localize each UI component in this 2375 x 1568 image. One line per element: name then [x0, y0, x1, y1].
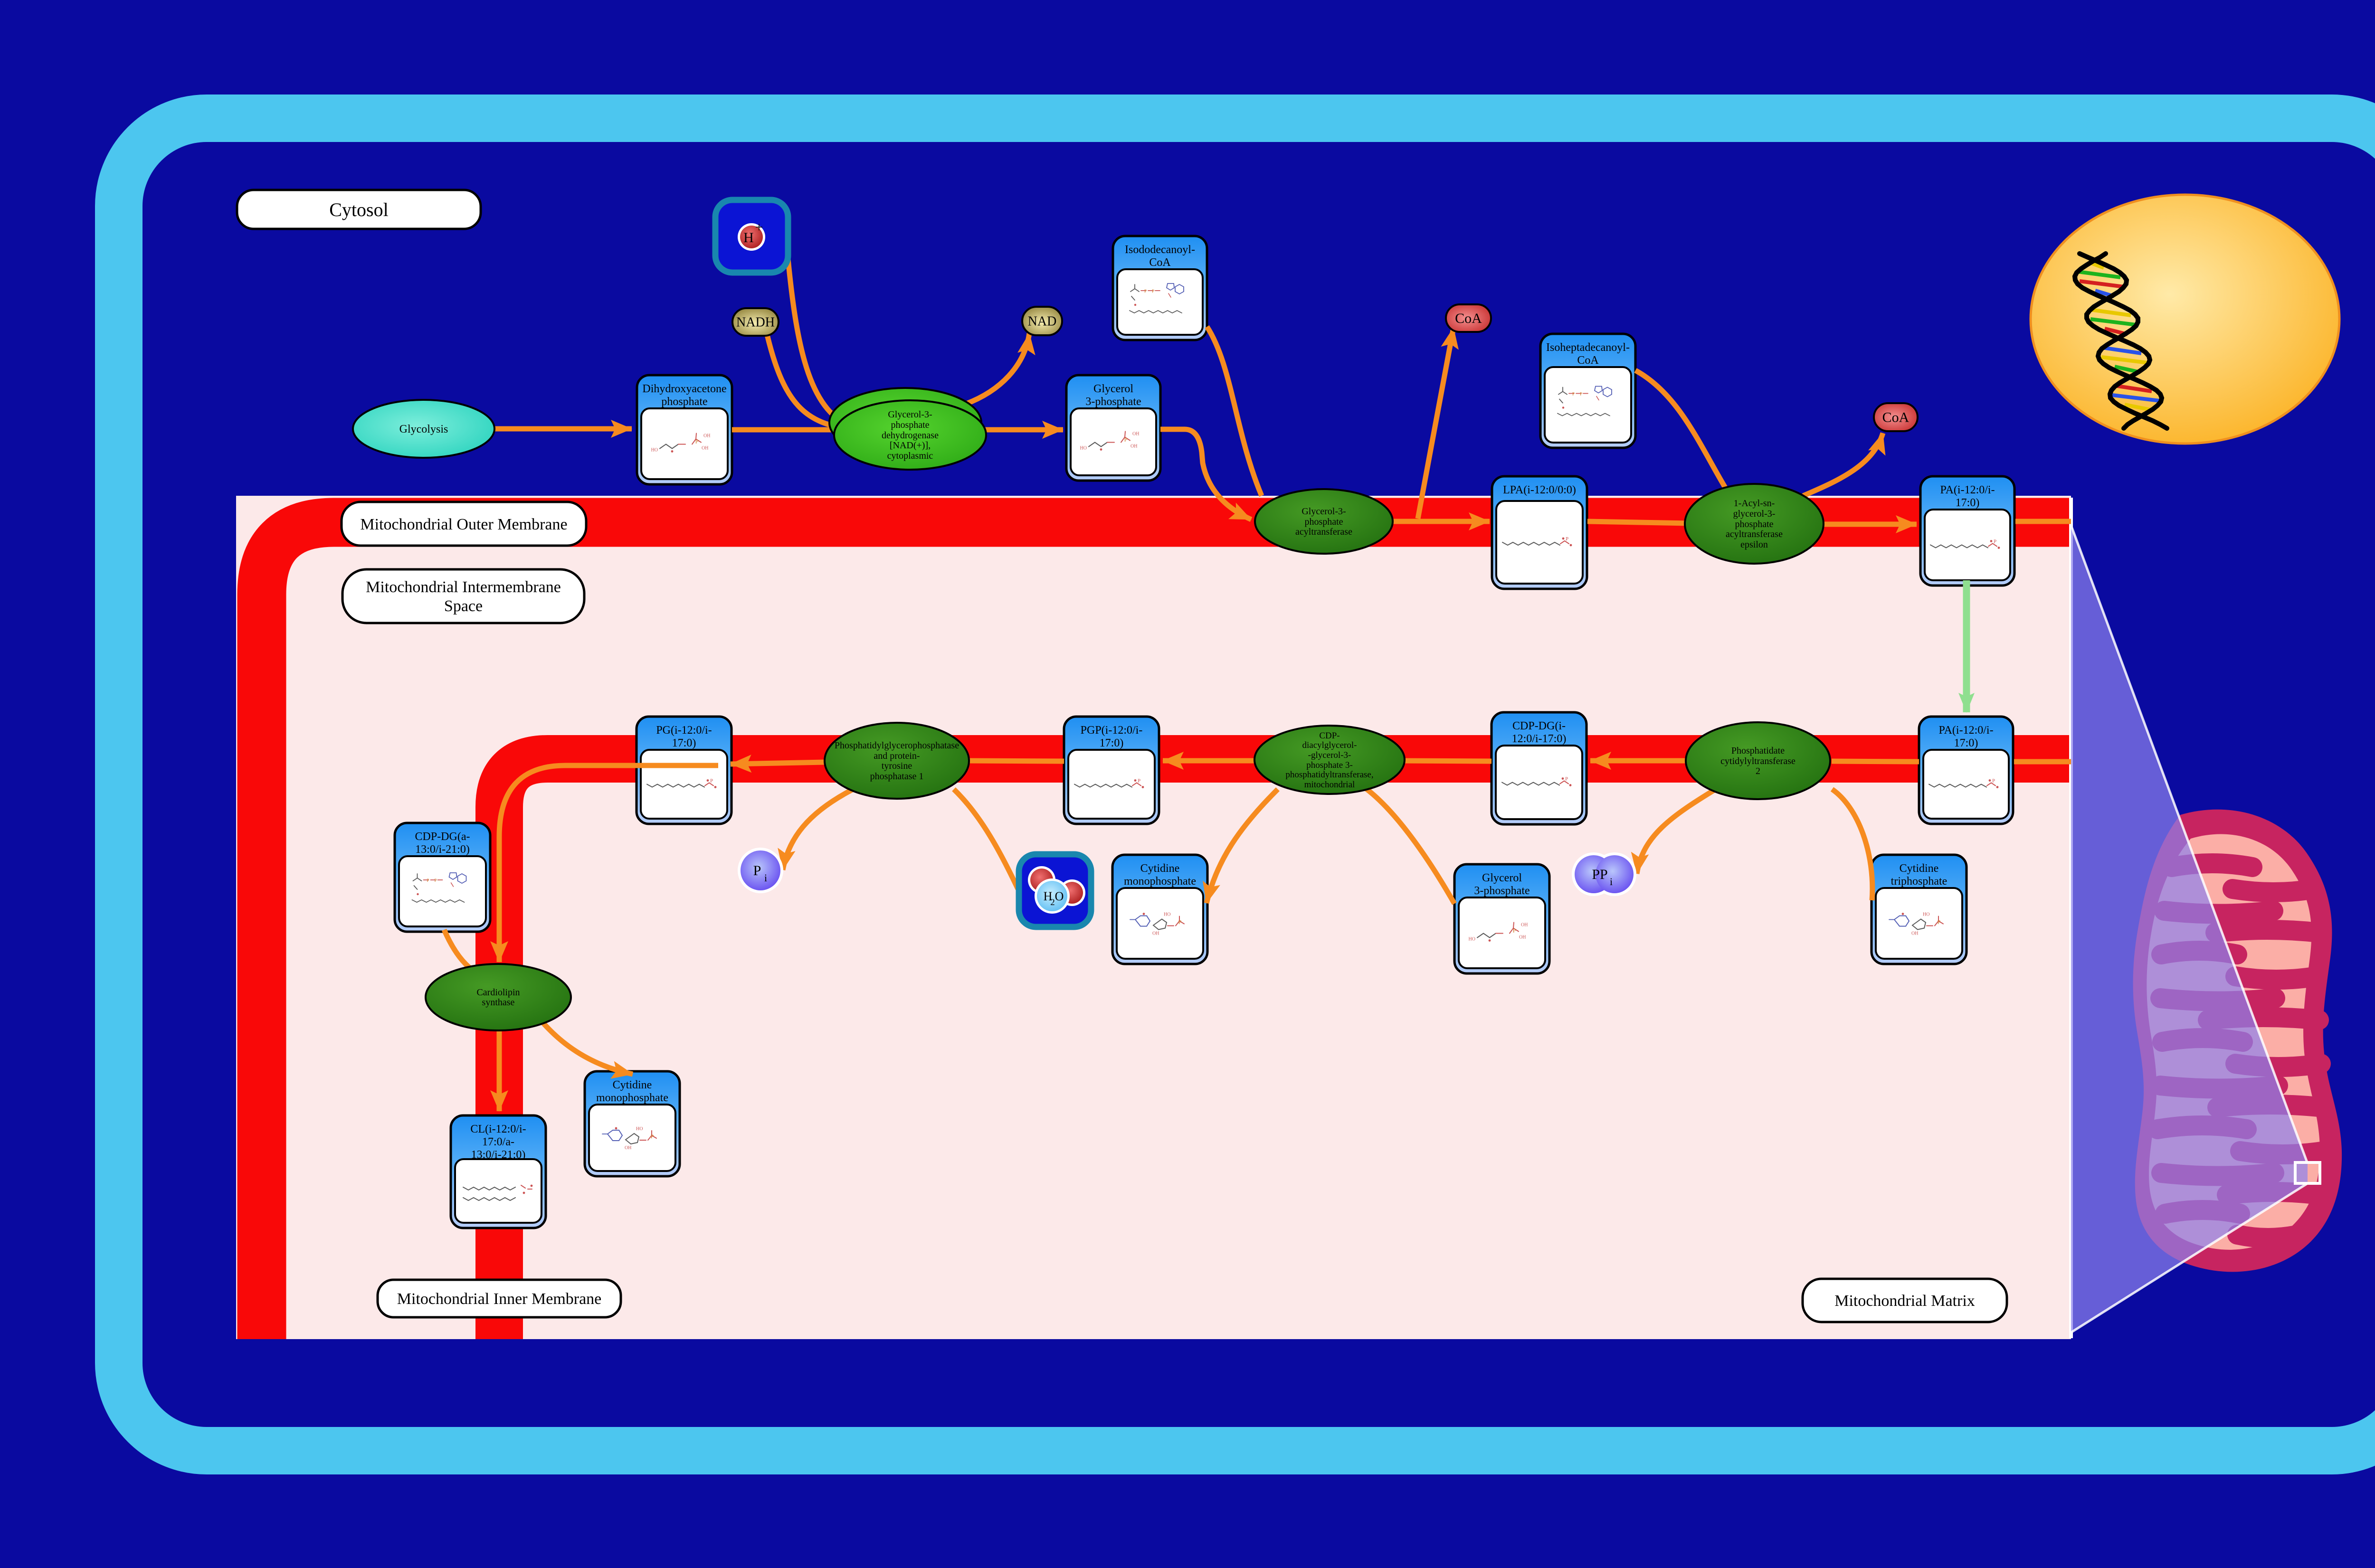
svg-text:Cytosol: Cytosol	[329, 199, 388, 220]
svg-text:HO: HO	[1469, 937, 1475, 942]
svg-text:17:0): 17:0)	[672, 737, 696, 749]
svg-text:Isododecanoyl-: Isododecanoyl-	[1125, 244, 1195, 256]
svg-text:epsilon: epsilon	[1740, 539, 1768, 550]
svg-text:Glycerol-3-: Glycerol-3-	[888, 409, 932, 420]
svg-text:CL(i-12:0/i-: CL(i-12:0/i-	[470, 1123, 526, 1135]
svg-text:cytoplasmic: cytoplasmic	[887, 451, 933, 461]
svg-text:Mitochondrial Outer Membrane: Mitochondrial Outer Membrane	[360, 516, 567, 533]
svg-text:HO: HO	[1164, 912, 1170, 917]
svg-text:Cytidine: Cytidine	[1140, 862, 1180, 875]
svg-text:phosphate: phosphate	[891, 420, 929, 430]
svg-text:phosphate: phosphate	[1304, 517, 1343, 527]
svg-text:Glycolysis: Glycolysis	[399, 423, 448, 435]
svg-text:P: P	[1938, 919, 1941, 926]
svg-text:phosphate: phosphate	[1735, 519, 1773, 529]
svg-text:P: P	[1572, 392, 1575, 397]
svg-text:PA(i-12:0/i-: PA(i-12:0/i-	[1940, 484, 1995, 496]
svg-text:CDP-: CDP-	[1319, 731, 1339, 741]
svg-text:O: O	[1055, 889, 1064, 903]
svg-text:CoA: CoA	[1577, 354, 1599, 367]
svg-text:P: P	[1513, 927, 1516, 934]
svg-text:17:0): 17:0)	[1954, 737, 1978, 749]
svg-text:Phosphatidate: Phosphatidate	[1731, 746, 1785, 756]
svg-text:CoA: CoA	[1455, 311, 1482, 326]
svg-text:Cytidine: Cytidine	[1900, 862, 1939, 875]
svg-text:triphosphate: triphosphate	[1891, 875, 1947, 888]
svg-text:phosphate: phosphate	[661, 396, 707, 408]
svg-text:NAD: NAD	[1028, 314, 1057, 329]
svg-text:HO: HO	[636, 1126, 643, 1132]
svg-text:NADH: NADH	[736, 315, 775, 330]
svg-text:P: P	[1152, 289, 1154, 293]
svg-text:CDP-DG(i-: CDP-DG(i-	[1512, 720, 1566, 732]
svg-text:synthase: synthase	[482, 997, 515, 1008]
svg-text:P: P	[710, 778, 713, 784]
svg-text:HO: HO	[1080, 446, 1087, 451]
svg-text:CoA: CoA	[1149, 256, 1171, 269]
svg-text:P: P	[753, 863, 761, 878]
svg-text:OH: OH	[1130, 444, 1137, 449]
svg-text:+: +	[755, 219, 763, 235]
svg-text:P: P	[1144, 289, 1147, 293]
svg-text:P: P	[1994, 539, 1996, 545]
svg-text:17:0): 17:0)	[1956, 497, 1980, 509]
svg-text:Glycerol: Glycerol	[1093, 383, 1133, 395]
svg-text:Glycerol-3-: Glycerol-3-	[1301, 506, 1346, 517]
svg-text:Cytidine: Cytidine	[613, 1079, 652, 1091]
svg-text:Phosphatidylglycerophosphatase: Phosphatidylglycerophosphatase	[835, 740, 959, 751]
svg-text:PG(i-12:0/i-: PG(i-12:0/i-	[656, 724, 712, 737]
svg-text:PGP(i-12:0/i-: PGP(i-12:0/i-	[1081, 724, 1143, 737]
svg-text:3-phosphate: 3-phosphate	[1085, 396, 1141, 408]
svg-text:P: P	[651, 1133, 654, 1140]
svg-text:OH: OH	[702, 446, 708, 451]
svg-text:OH: OH	[625, 1145, 631, 1151]
svg-text:P: P	[1992, 778, 1995, 784]
svg-text:monophosphate: monophosphate	[596, 1092, 668, 1104]
svg-text:PP: PP	[1592, 867, 1607, 882]
svg-text:PA(i-12:0/i-: PA(i-12:0/i-	[1938, 724, 1993, 737]
svg-text:LPA(i-12:0/0:0): LPA(i-12:0/0:0)	[1503, 484, 1576, 496]
svg-text:P: P	[1178, 919, 1182, 926]
svg-text:3-phosphate: 3-phosphate	[1474, 885, 1529, 897]
svg-text:HO: HO	[651, 448, 658, 453]
svg-text:P: P	[1124, 436, 1128, 443]
svg-text:dehydrogenase: dehydrogenase	[882, 430, 939, 441]
svg-text:Space: Space	[444, 597, 483, 615]
svg-text:P: P	[695, 438, 699, 445]
svg-text:17:0): 17:0)	[1100, 737, 1124, 749]
svg-text:P: P	[1565, 776, 1568, 782]
svg-text:diacylglycerol-: diacylglycerol-	[1302, 740, 1357, 750]
svg-text:mitochondrial: mitochondrial	[1304, 780, 1355, 790]
svg-text:OH: OH	[1911, 931, 1918, 936]
svg-text:CDP-DG(a-: CDP-DG(a-	[415, 831, 470, 843]
svg-text:phosphatidyltransferase,: phosphatidyltransferase,	[1285, 770, 1373, 780]
svg-text:monophosphate: monophosphate	[1124, 875, 1196, 888]
svg-text:glycerol-3-: glycerol-3-	[1733, 509, 1776, 519]
svg-text:OH: OH	[1152, 931, 1159, 936]
svg-text:P: P	[1138, 778, 1140, 784]
svg-text:CoA: CoA	[1882, 410, 1909, 425]
svg-text:P: P	[1580, 392, 1582, 397]
svg-text:HO: HO	[1923, 912, 1929, 917]
svg-text:Dihydroxyacetone: Dihydroxyacetone	[642, 383, 726, 395]
svg-text:acyltransferase: acyltransferase	[1726, 529, 1783, 539]
svg-text:2: 2	[1050, 897, 1055, 907]
svg-text:Mitochondrial Intermembrane: Mitochondrial Intermembrane	[366, 578, 561, 596]
svg-text:OH: OH	[1521, 923, 1528, 928]
svg-text:[NAD(+)],: [NAD(+)],	[890, 440, 931, 451]
svg-text:13:0/i-21:0): 13:0/i-21:0)	[415, 843, 470, 856]
svg-text:2: 2	[1756, 766, 1760, 776]
svg-text:Mitochondrial Inner Membrane: Mitochondrial Inner Membrane	[397, 1290, 602, 1308]
svg-text:1-Acyl-sn-: 1-Acyl-sn-	[1734, 498, 1775, 509]
svg-text:phosphate 3-: phosphate 3-	[1306, 760, 1353, 770]
svg-text:i: i	[764, 872, 767, 884]
svg-text:H: H	[743, 230, 754, 246]
svg-text:17:0/a-: 17:0/a-	[482, 1136, 514, 1148]
svg-text:12:0/i-17:0): 12:0/i-17:0)	[1512, 733, 1567, 745]
svg-text:-glycerol-3-: -glycerol-3-	[1308, 750, 1351, 760]
svg-text:OH: OH	[703, 434, 710, 439]
svg-text:Glycerol: Glycerol	[1482, 872, 1522, 884]
svg-text:P: P	[427, 878, 429, 883]
svg-text:OH: OH	[1519, 935, 1526, 940]
svg-text:cytidylyltransferase: cytidylyltransferase	[1720, 756, 1795, 766]
svg-text:acyltransferase: acyltransferase	[1295, 527, 1352, 537]
svg-text:and protein-: and protein-	[874, 751, 920, 761]
svg-text:phosphatase 1: phosphatase 1	[870, 771, 924, 782]
svg-text:OH: OH	[1132, 432, 1139, 437]
svg-text:tyrosine: tyrosine	[882, 761, 912, 771]
svg-text:Isoheptadecanoyl-: Isoheptadecanoyl-	[1546, 341, 1630, 354]
svg-text:Mitochondrial Matrix: Mitochondrial Matrix	[1834, 1292, 1975, 1310]
svg-text:P: P	[1566, 536, 1568, 542]
svg-text:Cardiolipin: Cardiolipin	[476, 987, 520, 998]
svg-text:i: i	[1610, 876, 1613, 888]
svg-text:P: P	[435, 878, 437, 883]
